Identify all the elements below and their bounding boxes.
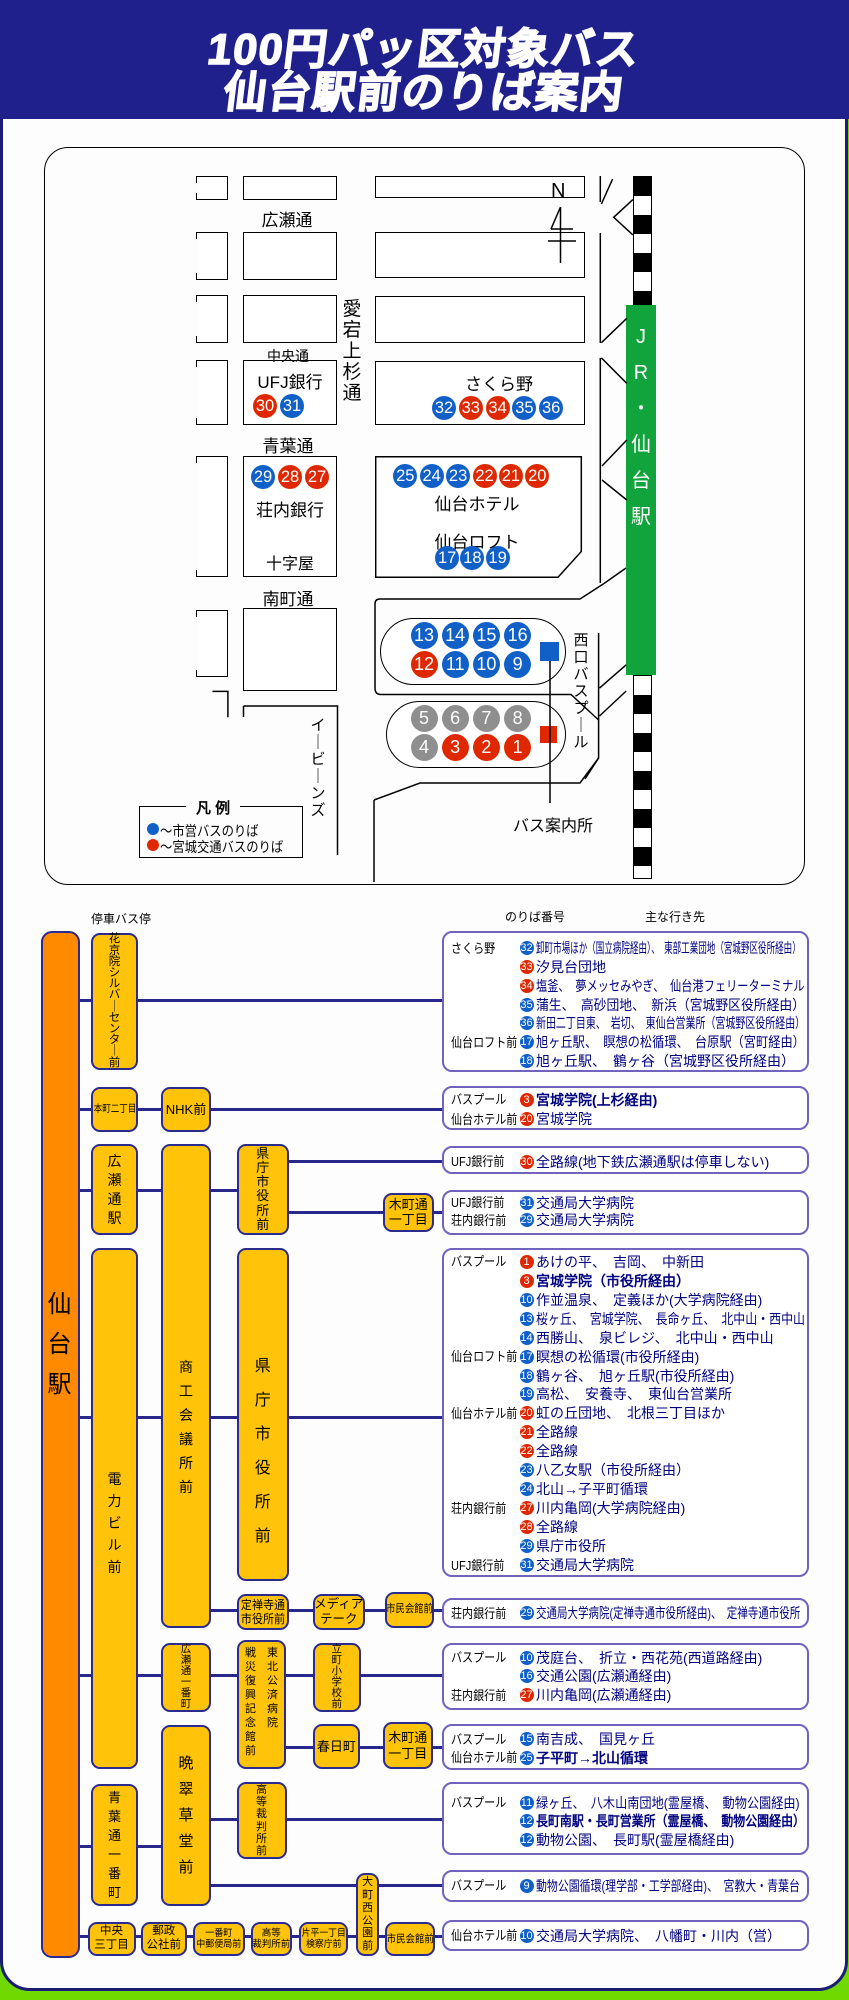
svg-text:N: N bbox=[551, 180, 565, 202]
